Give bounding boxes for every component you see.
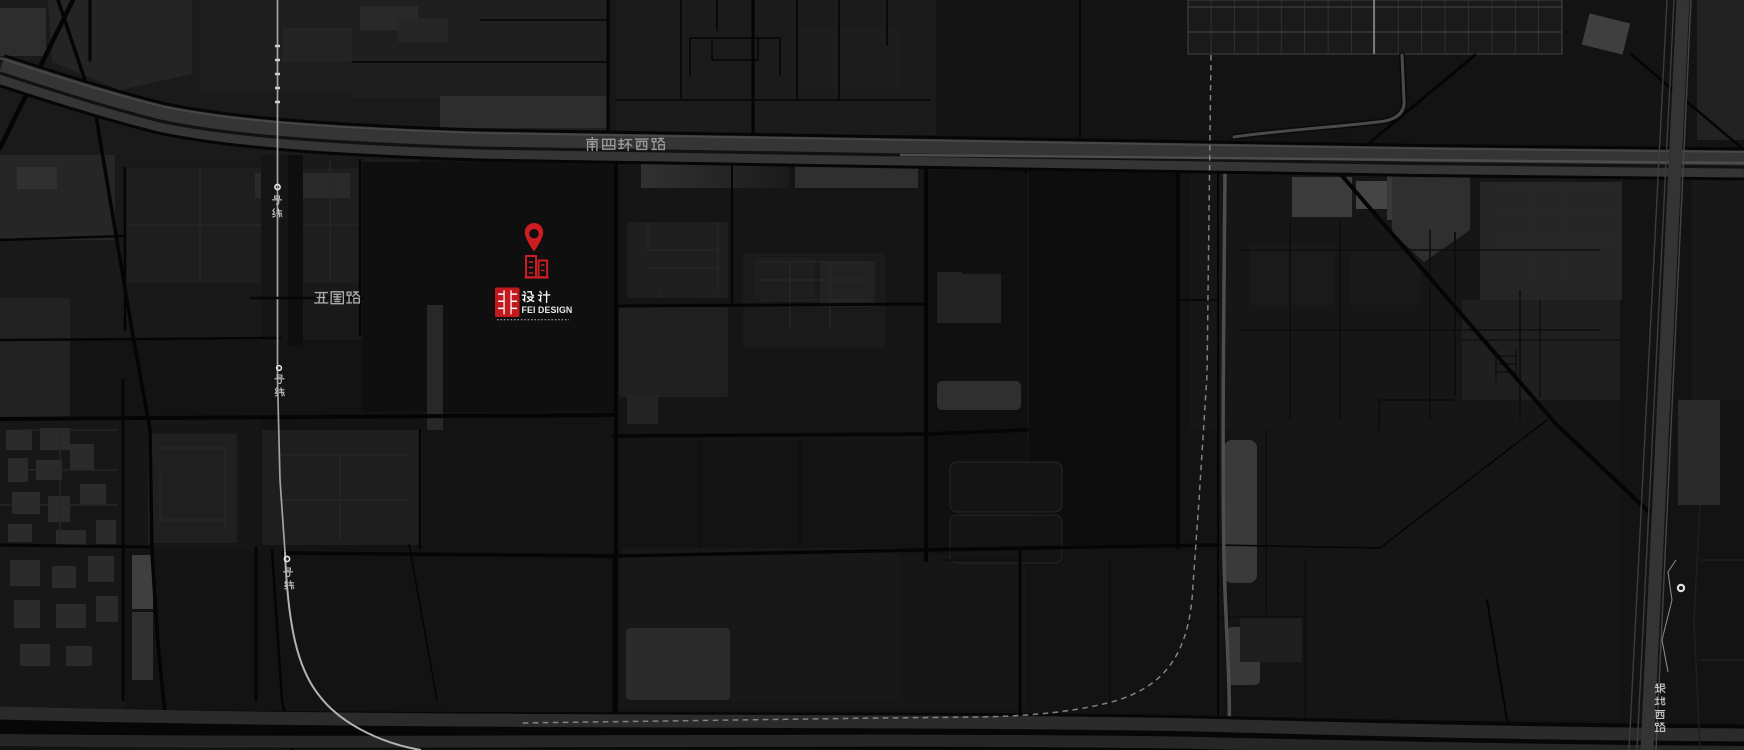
svg-text:FEI DESIGN: FEI DESIGN — [522, 305, 573, 315]
